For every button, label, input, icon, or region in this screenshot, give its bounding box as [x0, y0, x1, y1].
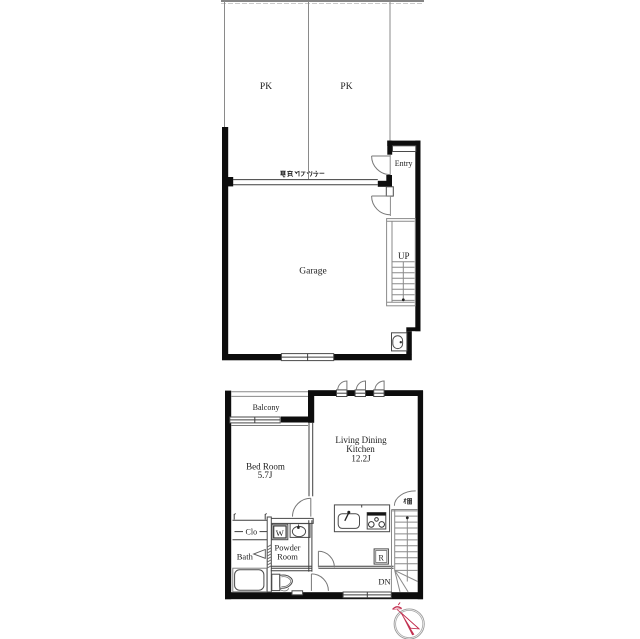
svg-text:R: R [379, 553, 385, 562]
svg-text:Garage: Garage [299, 267, 326, 277]
svg-text:Room: Room [277, 552, 298, 562]
svg-text:5.7J: 5.7J [258, 470, 273, 480]
svg-text:Balcony: Balcony [253, 403, 280, 412]
svg-text:UP: UP [398, 251, 410, 261]
svg-text:DN: DN [378, 577, 390, 587]
svg-text:PK: PK [260, 82, 272, 92]
svg-text:PK: PK [340, 82, 352, 92]
svg-text:Bath: Bath [237, 552, 254, 562]
svg-text:Entry: Entry [395, 159, 413, 168]
svg-text:12.2J: 12.2J [351, 453, 371, 463]
svg-text:W: W [276, 528, 284, 538]
svg-text:Clo: Clo [246, 528, 258, 537]
